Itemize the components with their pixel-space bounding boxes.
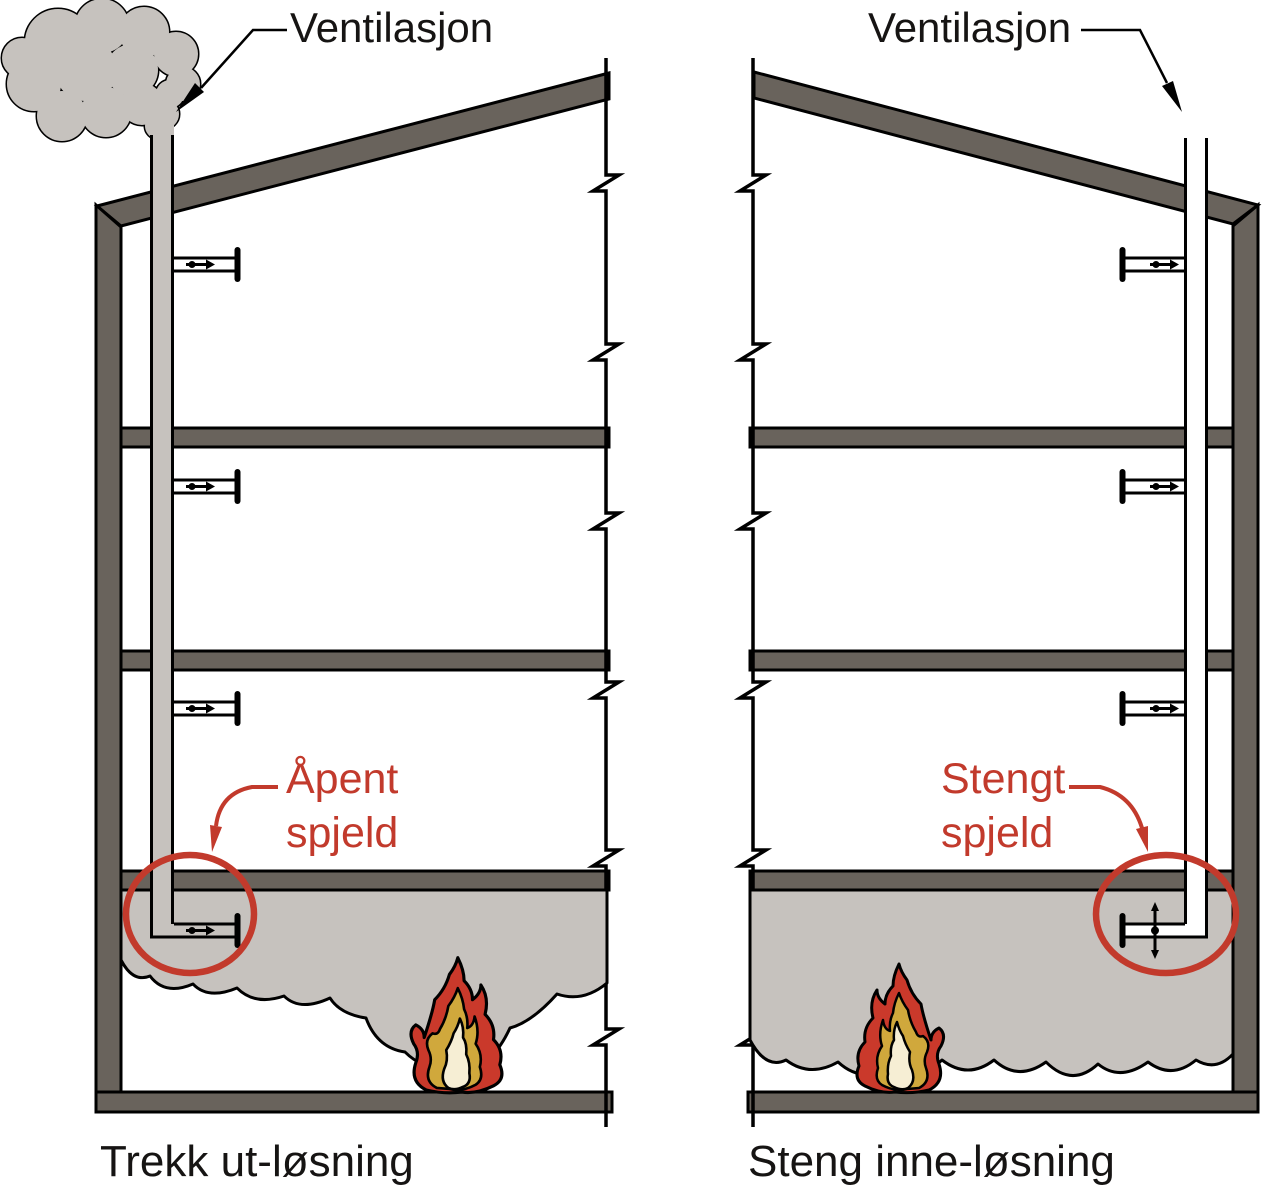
left-slab-1 — [121, 428, 609, 447]
left-slab-2 — [121, 651, 609, 670]
right-ventilation-duct — [1120, 136, 1209, 959]
open-damper-leader — [216, 787, 278, 826]
right-smoke-layer — [750, 890, 1233, 1076]
closed-damper-label-line1: Stengt — [941, 752, 1065, 806]
right-slab-3 — [750, 871, 1233, 890]
open-damper-label: Åpent spjeld — [286, 752, 398, 860]
diagram-svg — [0, 0, 1263, 1189]
left-ventilation-duct — [150, 112, 241, 948]
damper-end-caps — [1120, 247, 1126, 948]
right-caption: Steng inne-løsning — [748, 1138, 1115, 1186]
closed-damper-leader — [1069, 787, 1142, 828]
open-damper-symbol — [1150, 260, 1179, 714]
open-damper-symbol — [186, 260, 215, 936]
closed-damper-label: Stengt spjeld — [941, 752, 1065, 860]
left-slab-3 — [121, 871, 609, 890]
right-wall — [1233, 205, 1258, 1112]
damper-end-caps — [235, 247, 241, 948]
open-damper-label-line2: spjeld — [286, 806, 398, 860]
closed-damper-label-line2: spjeld — [941, 806, 1065, 860]
left-ventilation-label: Ventilasjon — [290, 6, 493, 50]
left-wall — [96, 205, 121, 1112]
right-ventilation-leader — [1081, 30, 1182, 112]
left-caption: Trekk ut-løsning — [100, 1138, 414, 1186]
right-roof — [754, 72, 1258, 224]
closed-damper-symbol — [1151, 902, 1159, 959]
right-slab-1 — [750, 428, 1233, 447]
left-bottom-slab — [96, 1092, 612, 1112]
right-ventilation-label: Ventilasjon — [868, 6, 1071, 50]
open-damper-label-line1: Åpent — [286, 752, 398, 806]
right-bottom-slab — [748, 1092, 1258, 1112]
right-slab-2 — [750, 651, 1233, 670]
open-damper-leader-arrowhead — [210, 825, 222, 852]
left-smoke-layer — [121, 890, 607, 1069]
figure-canvas: Ventilasjon Ventilasjon Åpent spjeld Ste… — [0, 0, 1263, 1189]
closed-damper-leader-arrowhead — [1136, 826, 1148, 852]
